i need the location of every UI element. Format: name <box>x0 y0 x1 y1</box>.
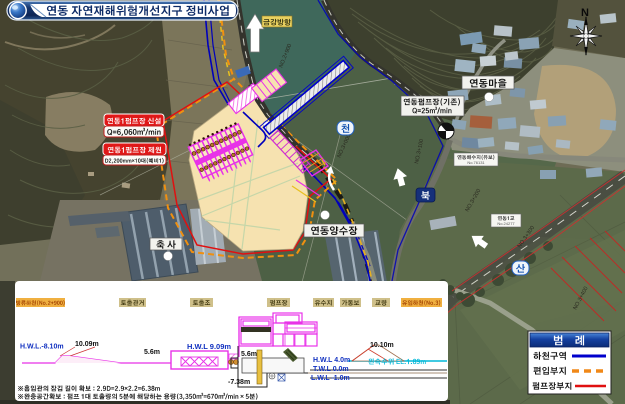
svg-text:H.W.L.-8.10m: H.W.L.-8.10m <box>20 344 64 351</box>
svg-text:N: N <box>581 7 589 19</box>
svg-text:No.76131: No.76131 <box>467 160 485 165</box>
svg-text:H.W.L 9.09m: H.W.L 9.09m <box>187 342 231 351</box>
svg-text:No.24277: No.24277 <box>497 221 515 226</box>
svg-text:-7.38m: -7.38m <box>228 379 250 386</box>
svg-text:5.6m: 5.6m <box>241 351 257 358</box>
svg-text:10.10m: 10.10m <box>370 342 394 349</box>
svg-text:5.6m: 5.6m <box>144 349 160 356</box>
svg-text:H.W.L 4.0m: H.W.L 4.0m <box>313 357 350 364</box>
svg-text:L.W.L -1.0m: L.W.L -1.0m <box>311 375 350 382</box>
svg-text:10.09m: 10.09m <box>75 341 99 348</box>
svg-text:T.W.L 0.0m: T.W.L 0.0m <box>313 366 349 373</box>
